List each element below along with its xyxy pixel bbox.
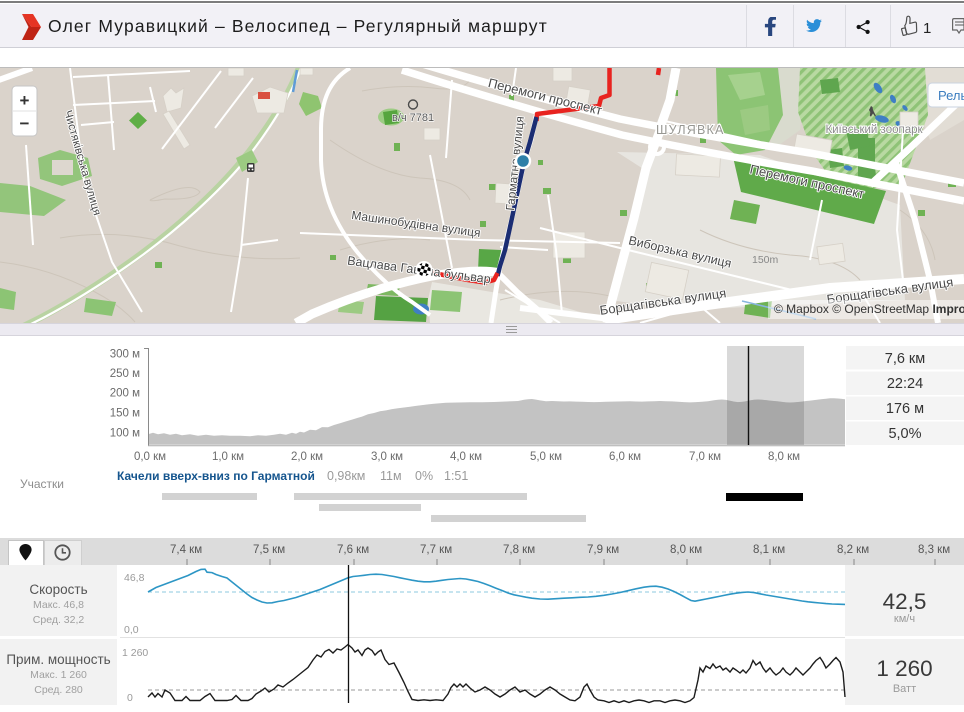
svg-text:176 м: 176 м: [886, 401, 924, 417]
svg-text:7,0 км: 7,0 км: [689, 451, 721, 463]
svg-text:Київський зоопарк: Київський зоопарк: [825, 124, 923, 136]
svg-text:+: +: [20, 91, 30, 110]
svg-text:в/ч 7781: в/ч 7781: [392, 112, 434, 124]
svg-text:4,0 км: 4,0 км: [450, 451, 482, 463]
svg-text:−: −: [20, 114, 30, 133]
svg-text:Рель: Рель: [938, 88, 964, 103]
svg-text:5,0 км: 5,0 км: [530, 451, 562, 463]
svg-text:250 м: 250 м: [110, 368, 140, 380]
svg-text:1 260: 1 260: [122, 647, 148, 659]
svg-text:22:24: 22:24: [887, 376, 923, 392]
svg-text:6,0 км: 6,0 км: [609, 451, 641, 463]
svg-text:100 м: 100 м: [110, 428, 140, 440]
svg-text:2,0 км: 2,0 км: [291, 451, 323, 463]
svg-text:1,0 км: 1,0 км: [212, 451, 244, 463]
svg-text:150m: 150m: [752, 254, 779, 266]
svg-text:7,6 км: 7,6 км: [885, 351, 926, 367]
svg-text:ШУЛЯВКА: ШУЛЯВКА: [656, 123, 725, 137]
svg-text:0,0: 0,0: [124, 624, 139, 636]
svg-text:0: 0: [127, 692, 133, 704]
svg-text:46,8: 46,8: [124, 572, 145, 584]
svg-text:200 м: 200 м: [110, 388, 140, 400]
svg-text:© Mapbox © OpenStreetMap Impro: © Mapbox © OpenStreetMap Impro: [774, 302, 964, 316]
svg-text:0,0 км: 0,0 км: [134, 451, 166, 463]
svg-text:8,0 км: 8,0 км: [768, 451, 800, 463]
svg-text:300 м: 300 м: [110, 349, 140, 361]
svg-text:5,0%: 5,0%: [888, 426, 921, 442]
svg-text:150 м: 150 м: [110, 408, 140, 420]
svg-text:3,0 км: 3,0 км: [371, 451, 403, 463]
